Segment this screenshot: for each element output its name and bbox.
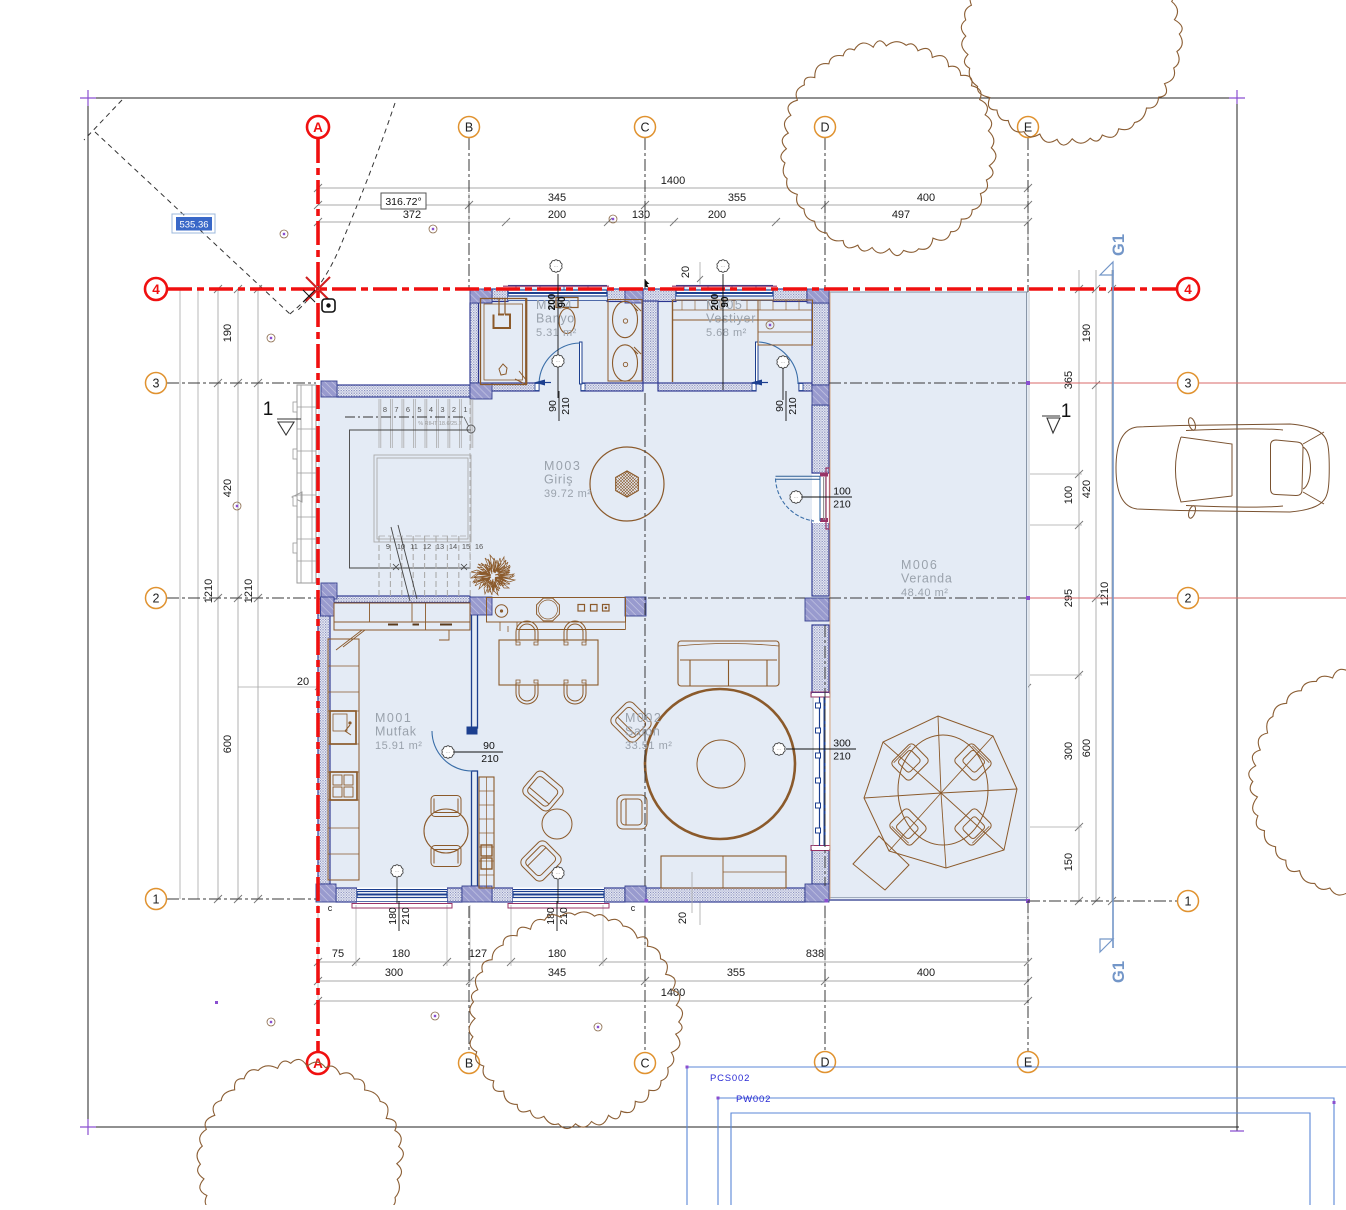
svg-text:838: 838 <box>806 948 824 960</box>
svg-text:20: 20 <box>677 912 689 924</box>
svg-text:···: ··· <box>554 264 559 270</box>
svg-text:% RIHT 18.6/25.7: % RIHT 18.6/25.7 <box>418 421 462 427</box>
svg-text:Vestiyer: Vestiyer <box>706 312 756 326</box>
svg-text:5.31 m²: 5.31 m² <box>536 327 577 339</box>
svg-text:E: E <box>1024 121 1032 135</box>
svg-text:1: 1 <box>1185 895 1192 909</box>
svg-text:355: 355 <box>727 967 745 979</box>
svg-text:100: 100 <box>1063 486 1075 504</box>
svg-text:D: D <box>820 121 829 135</box>
svg-text:600: 600 <box>222 735 234 753</box>
svg-text:6: 6 <box>406 405 410 414</box>
svg-text:130: 130 <box>632 209 650 221</box>
svg-text:M002: M002 <box>625 711 662 725</box>
svg-text:2: 2 <box>1185 592 1192 606</box>
svg-text:1: 1 <box>263 399 274 420</box>
svg-text:400: 400 <box>917 192 935 204</box>
svg-text:90: 90 <box>483 740 495 752</box>
svg-text:11: 11 <box>410 542 418 551</box>
svg-text:210: 210 <box>481 753 499 765</box>
svg-text:Banyo: Banyo <box>536 312 575 326</box>
svg-text:420: 420 <box>1081 480 1093 498</box>
svg-text:15: 15 <box>462 542 470 551</box>
svg-text:1210: 1210 <box>203 579 215 603</box>
svg-text:···: ··· <box>794 495 799 501</box>
svg-text:12: 12 <box>423 542 431 551</box>
svg-text:1210: 1210 <box>1099 582 1111 606</box>
svg-text:A: A <box>313 120 323 135</box>
svg-text:9: 9 <box>386 542 390 551</box>
svg-text:345: 345 <box>548 192 566 204</box>
svg-text:B: B <box>465 1057 473 1071</box>
svg-text:B: B <box>465 121 473 135</box>
svg-text:210: 210 <box>558 907 570 925</box>
svg-text:190: 190 <box>222 324 234 342</box>
svg-text:100: 100 <box>833 486 851 498</box>
svg-text:Giriş: Giriş <box>544 473 573 487</box>
svg-text:300: 300 <box>1063 742 1075 760</box>
svg-text:20: 20 <box>680 266 692 278</box>
svg-text:1: 1 <box>153 893 160 907</box>
svg-text:190: 190 <box>1081 324 1093 342</box>
svg-text:400: 400 <box>917 967 935 979</box>
svg-text:c: c <box>631 903 636 913</box>
svg-text:2: 2 <box>153 592 160 606</box>
svg-text:20: 20 <box>297 676 309 688</box>
svg-text:75: 75 <box>332 948 344 960</box>
svg-text:M003: M003 <box>544 459 581 473</box>
svg-text:1: 1 <box>463 405 467 414</box>
svg-text:210: 210 <box>833 751 851 763</box>
svg-text:5: 5 <box>417 405 421 414</box>
svg-text:16: 16 <box>475 542 483 551</box>
svg-text:C: C <box>640 1057 649 1071</box>
svg-text:210: 210 <box>787 397 799 415</box>
svg-text:Salon: Salon <box>625 725 660 739</box>
svg-text:14: 14 <box>449 542 457 551</box>
svg-text:1: 1 <box>1061 401 1072 422</box>
svg-text:33.51 m²: 33.51 m² <box>625 740 672 752</box>
svg-text:4: 4 <box>1184 282 1192 297</box>
svg-text:···: ··· <box>446 750 451 756</box>
svg-text:···: ··· <box>556 359 561 365</box>
svg-text:···: ··· <box>556 871 561 877</box>
svg-text:G1: G1 <box>1110 234 1128 256</box>
svg-text:PW002: PW002 <box>736 1094 771 1105</box>
svg-text:150: 150 <box>1063 853 1075 871</box>
svg-text:4: 4 <box>429 405 433 414</box>
svg-text:C: C <box>640 121 649 135</box>
svg-text:300: 300 <box>385 967 403 979</box>
svg-text:90: 90 <box>774 400 786 412</box>
svg-text:127: 127 <box>469 948 487 960</box>
svg-text:200: 200 <box>708 209 726 221</box>
svg-text:345: 345 <box>548 967 566 979</box>
svg-text:PCS002: PCS002 <box>710 1073 750 1084</box>
svg-text:372: 372 <box>403 209 421 221</box>
svg-text:90: 90 <box>720 296 731 308</box>
svg-text:1400: 1400 <box>661 175 685 187</box>
svg-text:210: 210 <box>400 907 412 925</box>
svg-text:355: 355 <box>728 192 746 204</box>
svg-text:365: 365 <box>1063 371 1075 389</box>
svg-text:3: 3 <box>440 405 444 414</box>
svg-text:c: c <box>328 903 333 913</box>
svg-text:200: 200 <box>548 209 566 221</box>
svg-text:316.72°: 316.72° <box>385 196 421 208</box>
svg-text:···: ··· <box>721 264 726 270</box>
svg-text:90: 90 <box>547 400 559 412</box>
svg-text:Mutfak: Mutfak <box>375 725 417 739</box>
svg-text:···: ··· <box>781 360 786 366</box>
svg-text:4: 4 <box>152 282 160 297</box>
svg-text:8: 8 <box>383 405 387 414</box>
svg-text:15.91 m²: 15.91 m² <box>375 740 422 752</box>
svg-text:M006: M006 <box>901 558 938 572</box>
svg-text:210: 210 <box>560 397 572 415</box>
svg-text:3: 3 <box>1185 377 1192 391</box>
svg-text:48.40 m²: 48.40 m² <box>901 587 948 599</box>
svg-text:M001: M001 <box>375 711 412 725</box>
svg-text:420: 420 <box>222 479 234 497</box>
svg-text:300: 300 <box>833 738 851 750</box>
svg-text:497: 497 <box>892 209 910 221</box>
svg-text:180: 180 <box>545 907 557 925</box>
svg-text:180: 180 <box>548 948 566 960</box>
svg-text:180: 180 <box>392 948 410 960</box>
svg-text:Veranda: Veranda <box>901 572 952 586</box>
svg-text:210: 210 <box>833 499 851 511</box>
svg-text:···: ··· <box>395 869 400 875</box>
svg-text:2: 2 <box>452 405 456 414</box>
svg-text:7: 7 <box>394 405 398 414</box>
svg-text:180: 180 <box>387 907 399 925</box>
svg-text:G1: G1 <box>1110 961 1128 983</box>
svg-text:13: 13 <box>436 542 444 551</box>
svg-text:5.68 m²: 5.68 m² <box>706 327 747 339</box>
svg-text:600: 600 <box>1081 739 1093 757</box>
svg-text:1210: 1210 <box>243 579 255 603</box>
svg-text:39.72 m²: 39.72 m² <box>544 488 591 500</box>
svg-text:3: 3 <box>153 377 160 391</box>
svg-text:···: ··· <box>777 747 782 753</box>
svg-text:90: 90 <box>557 296 568 308</box>
svg-text:535.36: 535.36 <box>179 220 208 231</box>
